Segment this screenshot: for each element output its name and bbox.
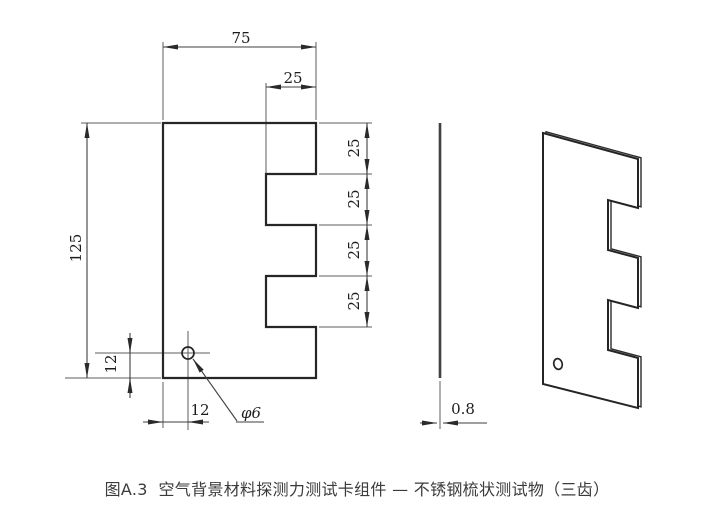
dim-top-width-label: 75 <box>231 29 250 47</box>
dim-tooth-width-label: 25 <box>283 69 302 87</box>
dim-pitch-label: 25 <box>345 138 363 157</box>
dim-pitch-label: 25 <box>345 291 363 310</box>
front-view-outline <box>163 123 316 378</box>
isometric-view-outline <box>543 133 638 408</box>
dim-pitch-label: 25 <box>345 240 363 259</box>
drawing-canvas: 75 25 125 25 25 25 25 12 12 φ6 0.8 <box>0 0 714 532</box>
isometric-view <box>543 132 641 408</box>
figure-caption: 图A.3 空气背景材料探测力测试卡组件 — 不锈钢梳状测试物（三齿） <box>0 476 714 500</box>
thickness-label: 0.8 <box>451 400 475 418</box>
dim-hole-offset-x-label: 12 <box>190 401 209 419</box>
hole-diameter-label: φ6 <box>241 404 262 422</box>
dimension-lines <box>87 47 367 422</box>
dim-height-label: 125 <box>67 234 85 263</box>
dim-hole-offset-y-label: 12 <box>102 354 120 373</box>
dim-pitch-label: 25 <box>345 189 363 208</box>
technical-drawing: 75 25 125 25 25 25 25 12 12 φ6 0.8 <box>0 0 714 532</box>
